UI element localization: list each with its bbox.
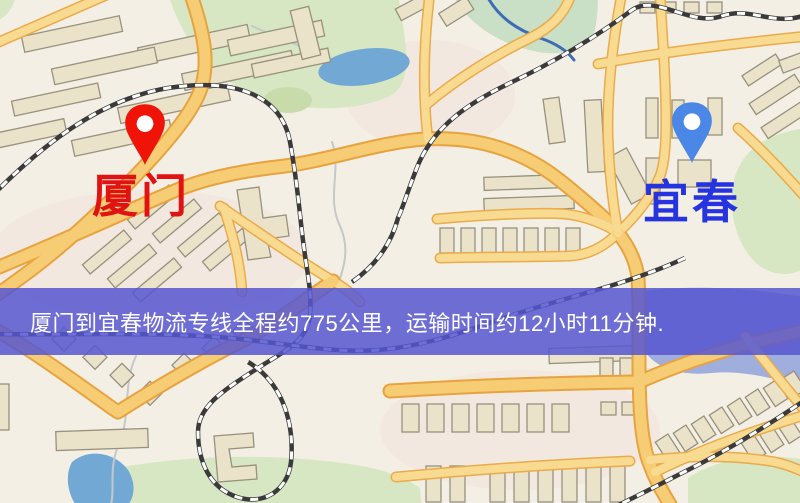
origin-pin-shape — [125, 104, 165, 165]
destination-pin-icon[interactable] — [668, 102, 716, 165]
pond-bottom-left — [68, 454, 134, 503]
map-view: 厦门 宜春 厦门到宜春物流专线全程约775公里，运输时间约12小时11分钟. — [0, 0, 800, 503]
map-canvas — [0, 0, 800, 503]
origin-label: 厦门 — [92, 173, 190, 219]
origin-pin-icon[interactable] — [121, 104, 169, 167]
destination-label: 宜春 — [643, 179, 741, 225]
route-info-text: 厦门到宜春物流专线全程约775公里，运输时间约12小时11分钟. — [30, 306, 664, 338]
destination-pin-hole — [684, 113, 701, 130]
route-info-banner: 厦门到宜春物流专线全程约775公里，运输时间约12小时11分钟. — [0, 288, 800, 355]
origin-pin-hole — [137, 115, 154, 132]
destination-pin-shape — [672, 102, 712, 163]
